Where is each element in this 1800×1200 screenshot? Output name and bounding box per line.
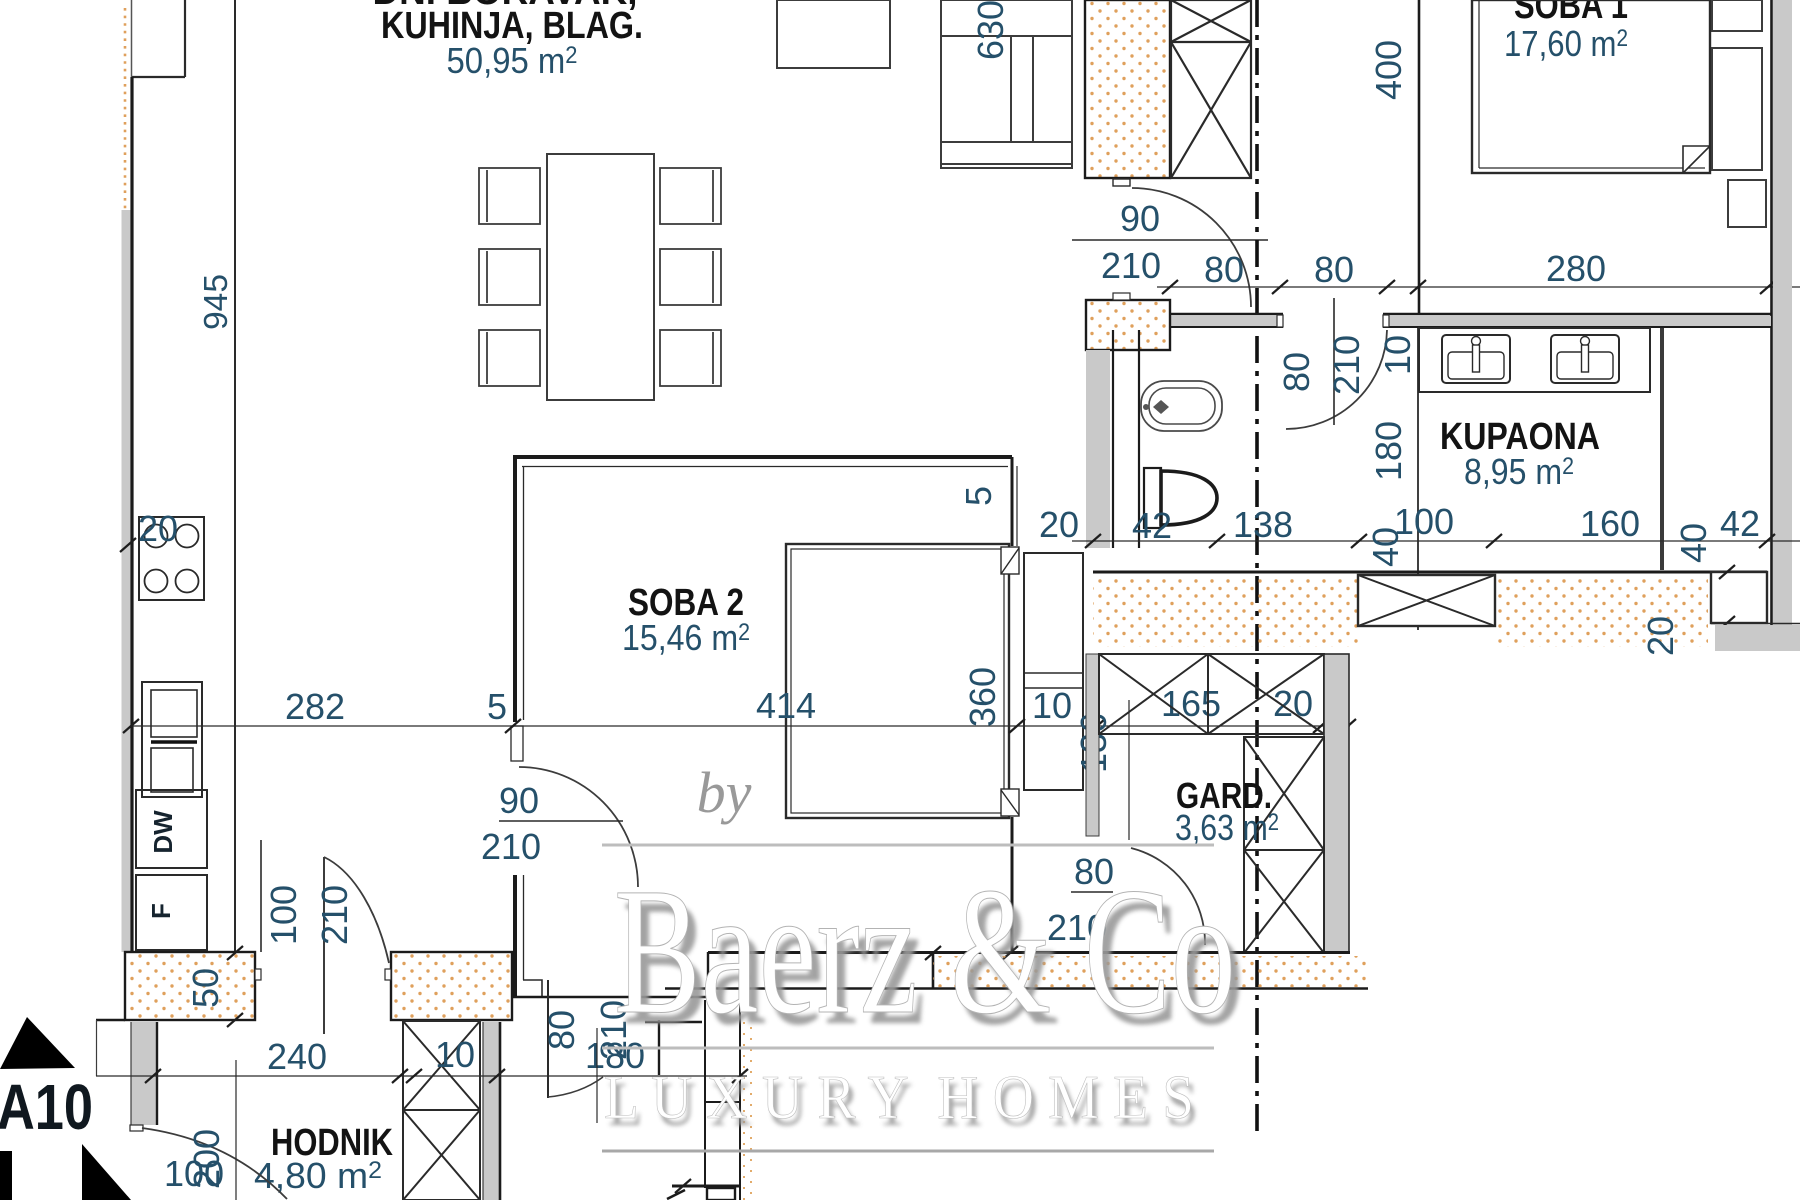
svg-text:240: 240 <box>267 1036 327 1077</box>
svg-text:414: 414 <box>756 685 816 726</box>
svg-text:15,46 m2: 15,46 m2 <box>622 617 750 658</box>
svg-text:3,63 m2: 3,63 m2 <box>1175 807 1279 848</box>
svg-text:630: 630 <box>970 0 1011 60</box>
svg-text:20: 20 <box>1640 616 1681 656</box>
svg-text:50: 50 <box>185 968 226 1008</box>
svg-text:400: 400 <box>1368 40 1409 100</box>
svg-text:42: 42 <box>1132 505 1172 546</box>
svg-text:100: 100 <box>263 885 304 945</box>
svg-text:5: 5 <box>958 486 999 506</box>
svg-text:90: 90 <box>499 780 539 821</box>
svg-text:10: 10 <box>1377 335 1418 375</box>
svg-text:42: 42 <box>1720 503 1760 544</box>
svg-text:F: F <box>146 903 176 919</box>
svg-text:L U X U R Y H O M E S: L U X U R Y H O M E S <box>604 1064 1194 1132</box>
svg-text:80: 80 <box>1276 352 1317 392</box>
svg-text:Baerz & Co: Baerz & Co <box>614 851 1236 1052</box>
svg-text:DW: DW <box>148 810 178 854</box>
svg-text:10: 10 <box>435 1034 475 1075</box>
svg-text:210: 210 <box>1101 245 1161 286</box>
svg-text:945: 945 <box>197 274 234 330</box>
svg-text:by: by <box>697 760 752 825</box>
svg-text:40: 40 <box>1365 527 1406 567</box>
svg-text:20: 20 <box>1039 504 1079 545</box>
svg-text:165: 165 <box>1161 683 1221 724</box>
svg-text:80: 80 <box>541 1010 582 1050</box>
svg-text:160: 160 <box>1580 503 1640 544</box>
svg-text:180: 180 <box>1368 421 1409 481</box>
svg-text:A10: A10 <box>0 1071 93 1143</box>
svg-text:200: 200 <box>186 1129 227 1189</box>
svg-text:210: 210 <box>481 826 541 867</box>
svg-text:20: 20 <box>138 508 178 549</box>
svg-text:210: 210 <box>1326 335 1367 395</box>
svg-text:138: 138 <box>1233 504 1293 545</box>
svg-text:210: 210 <box>314 885 355 945</box>
svg-text:10: 10 <box>1032 685 1072 726</box>
svg-text:17,60 m2: 17,60 m2 <box>1504 23 1628 64</box>
svg-text:80: 80 <box>1204 249 1244 290</box>
svg-text:282: 282 <box>285 686 345 727</box>
svg-text:50,95 m2: 50,95 m2 <box>447 40 578 81</box>
svg-text:5: 5 <box>487 686 507 727</box>
svg-text:80: 80 <box>1314 249 1354 290</box>
svg-text:40: 40 <box>1673 523 1714 563</box>
svg-text:280: 280 <box>1546 248 1606 289</box>
svg-text:90: 90 <box>1120 198 1160 239</box>
svg-text:4,80 m2: 4,80 m2 <box>254 1155 382 1196</box>
svg-text:360: 360 <box>962 667 1003 727</box>
svg-text:8,95 m2: 8,95 m2 <box>1464 451 1574 492</box>
